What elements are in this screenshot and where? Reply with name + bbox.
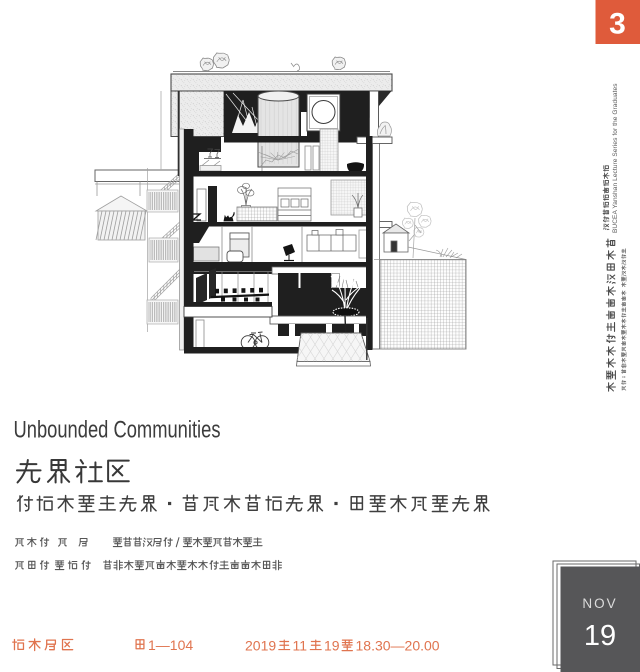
- svg-text:NOV: NOV: [582, 596, 617, 611]
- svg-text:11: 11: [293, 638, 308, 654]
- svg-text:Unbounded Communities: Unbounded Communities: [14, 417, 221, 444]
- svg-text:3: 3: [609, 8, 626, 41]
- svg-text:19: 19: [584, 620, 616, 652]
- svg-text:2019: 2019: [245, 638, 276, 654]
- svg-text:1—104: 1—104: [148, 637, 193, 653]
- svg-text:18.30—20.00: 18.30—20.00: [356, 638, 440, 654]
- svg-text:BUCEA Yanshan Lecture Serie: BUCEA Yanshan Lecture Series for the Gra…: [612, 83, 619, 233]
- svg-text:19: 19: [324, 638, 340, 654]
